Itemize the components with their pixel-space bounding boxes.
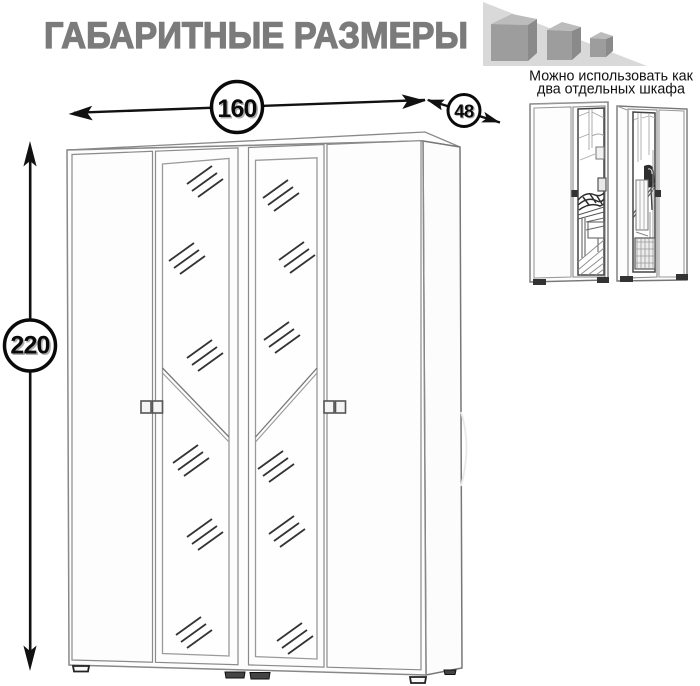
svg-text:160: 160: [217, 95, 256, 123]
svg-text:два отдельных шкафа: два отдельных шкафа: [537, 82, 685, 98]
svg-text:48: 48: [454, 100, 474, 121]
svg-text:ГАБАРИТНЫЕ РАЗМЕРЫ: ГАБАРИТНЫЕ РАЗМЕРЫ: [44, 15, 468, 56]
svg-text:220: 220: [10, 332, 49, 360]
